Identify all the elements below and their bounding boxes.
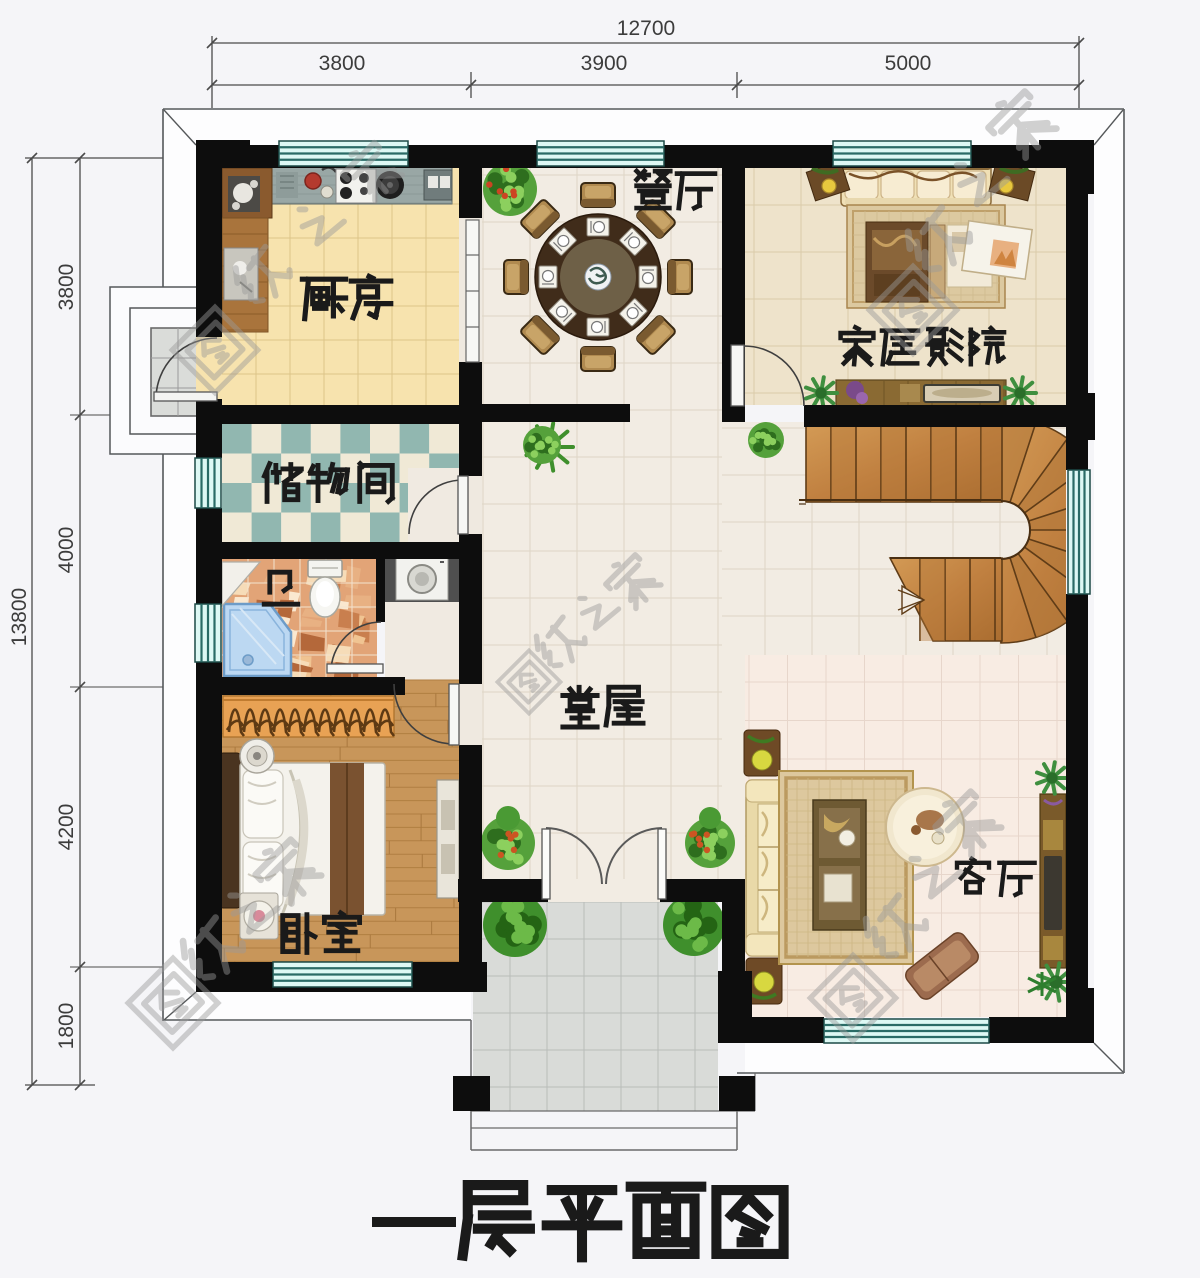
svg-text:5000: 5000 (885, 52, 932, 75)
svg-text:4000: 4000 (55, 527, 78, 574)
svg-text:12700: 12700 (617, 17, 675, 40)
svg-text:3800: 3800 (319, 52, 366, 75)
svg-text:1800: 1800 (55, 1003, 78, 1050)
svg-text:3900: 3900 (581, 52, 628, 75)
svg-text:3800: 3800 (55, 264, 78, 311)
svg-text:4200: 4200 (55, 804, 78, 851)
svg-text:13800: 13800 (8, 588, 31, 646)
